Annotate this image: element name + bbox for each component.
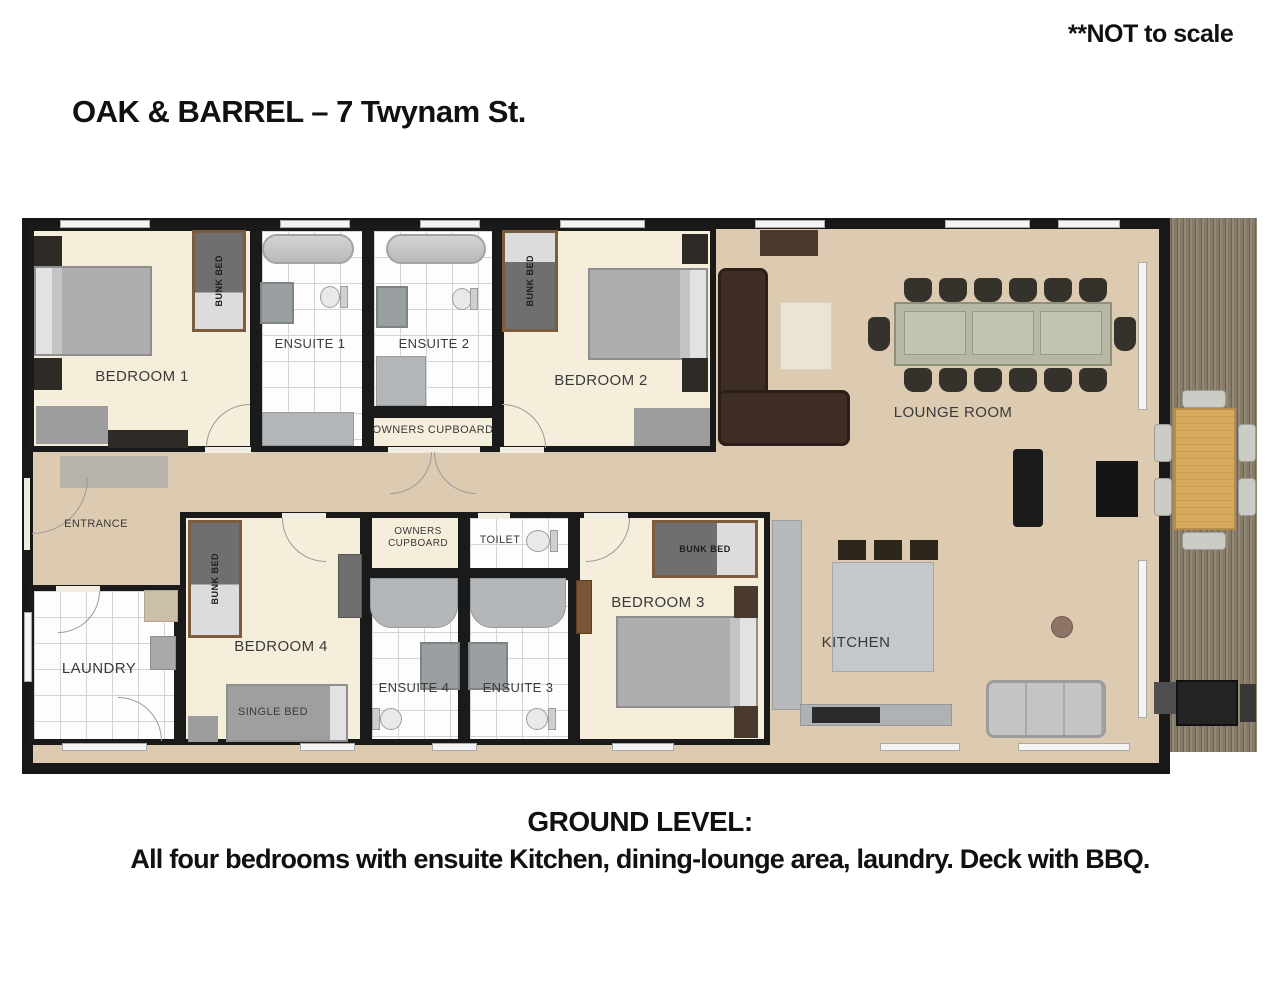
dining-chair bbox=[974, 368, 1002, 392]
bunk-bed-label: BUNK BED bbox=[210, 553, 220, 605]
kitchen-counter-left bbox=[772, 520, 802, 710]
toilet-tank bbox=[340, 286, 348, 308]
toilet-bowl bbox=[526, 708, 548, 730]
vanity bbox=[262, 412, 354, 446]
tv-cabinet bbox=[1013, 449, 1043, 527]
cooktop bbox=[812, 707, 880, 723]
label-ensuite-4: ENSUITE 4 bbox=[379, 680, 450, 695]
bbq-side-shelf bbox=[1154, 682, 1176, 714]
label-bedroom-4: BEDROOM 4 bbox=[234, 638, 328, 655]
label-toilet: TOILET bbox=[480, 534, 521, 546]
bunk-bed-bedroom2: BUNK BED bbox=[502, 230, 558, 332]
dining-chair bbox=[939, 278, 967, 302]
table-panel bbox=[1040, 311, 1102, 355]
sliding-door bbox=[1138, 560, 1147, 718]
bedside-table bbox=[734, 586, 758, 618]
wardrobe bbox=[682, 234, 708, 264]
sideboard bbox=[760, 230, 818, 256]
dining-chair bbox=[1009, 278, 1037, 302]
dining-chair bbox=[1114, 317, 1136, 351]
outdoor-table bbox=[1174, 408, 1236, 530]
bench bbox=[36, 406, 108, 444]
kitchen-island bbox=[832, 562, 934, 672]
floor-plan-page: **NOT to scale OAK & BARREL – 7 Twynam S… bbox=[0, 0, 1280, 989]
bunk-bed-bedroom3: BUNK BED bbox=[652, 520, 758, 578]
dining-table bbox=[894, 302, 1112, 366]
outdoor-chair bbox=[1182, 390, 1226, 408]
dining-chair bbox=[1009, 368, 1037, 392]
dining-chair bbox=[1044, 368, 1072, 392]
page-title: OAK & BARREL – 7 Twynam St. bbox=[72, 94, 526, 130]
bunk-bed-bedroom4: BUNK BED bbox=[188, 520, 242, 638]
wardrobe bbox=[682, 358, 708, 392]
window bbox=[432, 743, 477, 751]
window bbox=[62, 743, 147, 751]
wardrobe bbox=[338, 554, 362, 618]
label-ensuite-3: ENSUITE 3 bbox=[483, 680, 554, 695]
caption: GROUND LEVEL: All four bedrooms with ens… bbox=[0, 806, 1280, 875]
bunk-bed-bedroom1: BUNK BED bbox=[192, 230, 246, 332]
label-ensuite-1: ENSUITE 1 bbox=[275, 336, 346, 351]
window bbox=[880, 743, 960, 751]
vanity bbox=[470, 578, 566, 628]
label-entrance: ENTRANCE bbox=[64, 518, 128, 530]
bunk-bed-label: BUNK BED bbox=[679, 544, 731, 554]
credenza bbox=[108, 430, 188, 448]
bench bbox=[188, 716, 218, 742]
table-panel bbox=[972, 311, 1034, 355]
not-to-scale-note: **NOT to scale bbox=[1068, 20, 1233, 49]
dining-chair bbox=[904, 278, 932, 302]
dining-chair bbox=[868, 317, 890, 351]
dining-chair bbox=[1079, 278, 1107, 302]
toilet-bowl bbox=[320, 286, 340, 308]
toilet-tank bbox=[470, 288, 478, 310]
sofa-l-horizontal bbox=[718, 390, 850, 446]
bbq-side-shelf bbox=[1240, 684, 1256, 722]
bedside-table bbox=[734, 706, 758, 738]
outdoor-chair bbox=[1238, 424, 1256, 462]
double-bed-bedroom3 bbox=[616, 616, 758, 708]
window bbox=[612, 743, 674, 751]
bar-stool bbox=[874, 540, 902, 560]
label-single-bed: SINGLE BED bbox=[238, 706, 308, 718]
wardrobe bbox=[34, 358, 62, 390]
bar-stool bbox=[910, 540, 938, 560]
label-owners-line2: CUPBOARD bbox=[388, 538, 448, 550]
label-owners-line1: OWNERS bbox=[388, 526, 448, 538]
label-laundry: LAUNDRY bbox=[62, 660, 136, 677]
toilet-bowl bbox=[452, 288, 472, 310]
cupboard bbox=[576, 580, 592, 634]
outdoor-chair bbox=[1154, 478, 1172, 516]
washing-machine bbox=[150, 636, 176, 670]
toilet-tank bbox=[550, 530, 558, 552]
dining-chair bbox=[904, 368, 932, 392]
bbq bbox=[1176, 680, 1238, 726]
rug bbox=[780, 302, 832, 370]
tv-unit bbox=[1096, 461, 1138, 517]
double-bed-bedroom1 bbox=[34, 266, 152, 356]
label-owners-cupboard-top: OWNERS CUPBOARD bbox=[373, 424, 494, 436]
dining-chair bbox=[974, 278, 1002, 302]
bathtub bbox=[386, 234, 486, 264]
window bbox=[24, 612, 32, 682]
bench bbox=[634, 408, 710, 446]
toilet-tank bbox=[372, 708, 380, 730]
window bbox=[755, 220, 825, 228]
outdoor-chair bbox=[1182, 532, 1226, 550]
label-bedroom-2: BEDROOM 2 bbox=[554, 372, 648, 389]
sliding-door bbox=[1138, 262, 1147, 410]
window bbox=[60, 220, 150, 228]
label-lounge-room: LOUNGE ROOM bbox=[894, 404, 1013, 421]
toilet-tank bbox=[548, 708, 556, 730]
dining-chair bbox=[939, 368, 967, 392]
vanity bbox=[376, 356, 426, 406]
toilet-bowl bbox=[526, 530, 550, 552]
window bbox=[300, 743, 355, 751]
vanity bbox=[370, 578, 458, 628]
label-owners-cupboard-bottom: OWNERS CUPBOARD bbox=[388, 526, 448, 550]
bathtub bbox=[262, 234, 354, 264]
toilet-bowl bbox=[380, 708, 402, 730]
window bbox=[560, 220, 645, 228]
caption-line2: All four bedrooms with ensuite Kitchen, … bbox=[0, 844, 1280, 875]
window bbox=[1058, 220, 1120, 228]
window bbox=[420, 220, 480, 228]
table-panel bbox=[904, 311, 966, 355]
sofa-gray bbox=[986, 680, 1106, 738]
outdoor-chair bbox=[1154, 424, 1172, 462]
outdoor-chair bbox=[1238, 478, 1256, 516]
label-kitchen: KITCHEN bbox=[822, 634, 891, 651]
window bbox=[1018, 743, 1130, 751]
dining-chair bbox=[1044, 278, 1072, 302]
double-bed-bedroom2 bbox=[588, 268, 708, 360]
bunk-bed-label: BUNK BED bbox=[525, 255, 535, 307]
window bbox=[945, 220, 1030, 228]
round-side-table bbox=[1051, 616, 1073, 638]
dining-chair bbox=[1079, 368, 1107, 392]
door-opening bbox=[478, 513, 510, 519]
label-ensuite-2: ENSUITE 2 bbox=[399, 336, 470, 351]
laundry-bench bbox=[144, 590, 178, 622]
entry-door-opening bbox=[24, 478, 30, 550]
shower bbox=[260, 282, 294, 324]
label-bedroom-3: BEDROOM 3 bbox=[611, 594, 705, 611]
window bbox=[280, 220, 350, 228]
shower bbox=[376, 286, 408, 328]
bunk-bed-label: BUNK BED bbox=[214, 255, 224, 307]
label-bedroom-1: BEDROOM 1 bbox=[95, 368, 189, 385]
bar-stool bbox=[838, 540, 866, 560]
wardrobe bbox=[34, 236, 62, 266]
caption-line1: GROUND LEVEL: bbox=[0, 806, 1280, 838]
